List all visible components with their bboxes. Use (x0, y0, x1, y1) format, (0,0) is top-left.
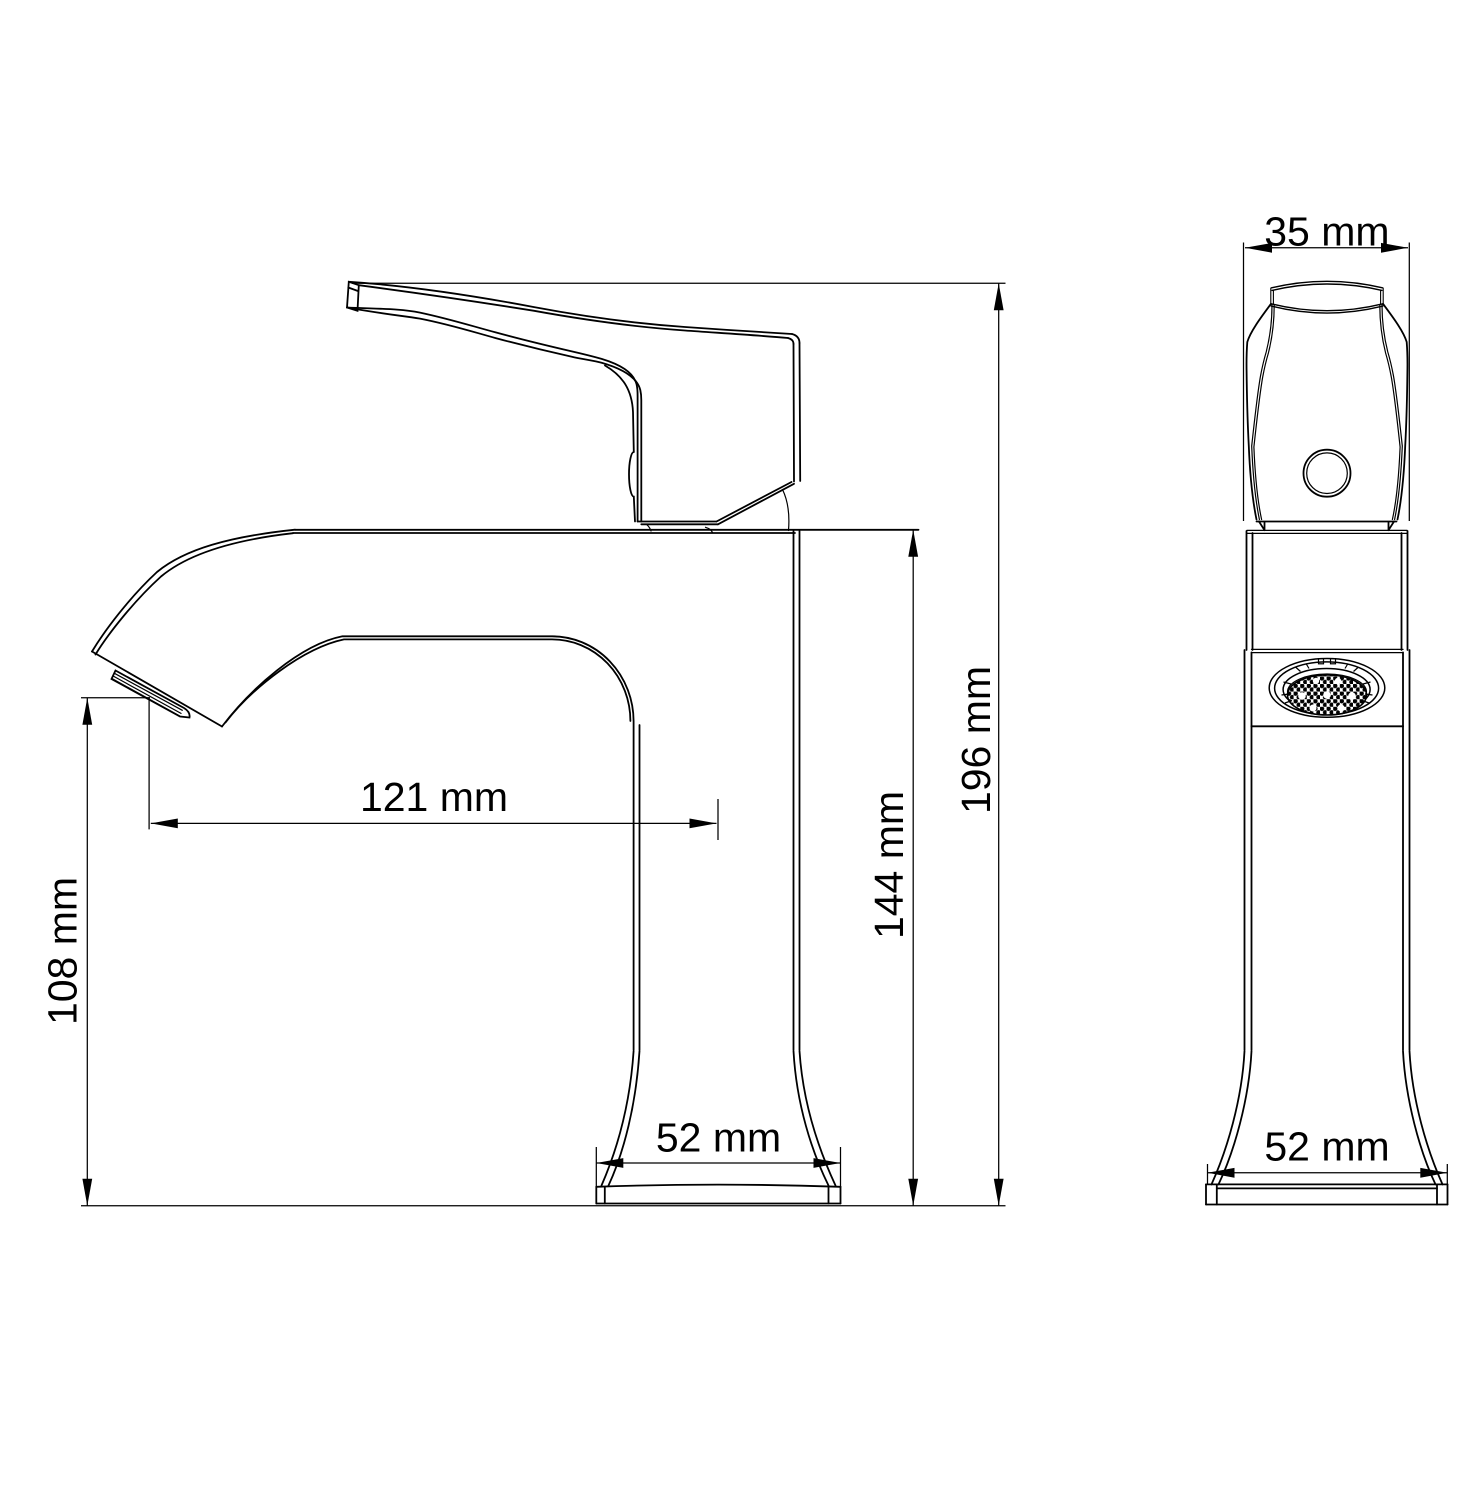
svg-text:108 mm: 108 mm (40, 877, 86, 1025)
svg-text:52 mm: 52 mm (1264, 1124, 1389, 1170)
svg-text:52 mm: 52 mm (656, 1115, 781, 1161)
svg-text:35 mm: 35 mm (1264, 209, 1389, 255)
svg-text:144 mm: 144 mm (866, 791, 912, 939)
svg-text:196 mm: 196 mm (953, 666, 999, 814)
svg-text:121 mm: 121 mm (360, 774, 508, 820)
